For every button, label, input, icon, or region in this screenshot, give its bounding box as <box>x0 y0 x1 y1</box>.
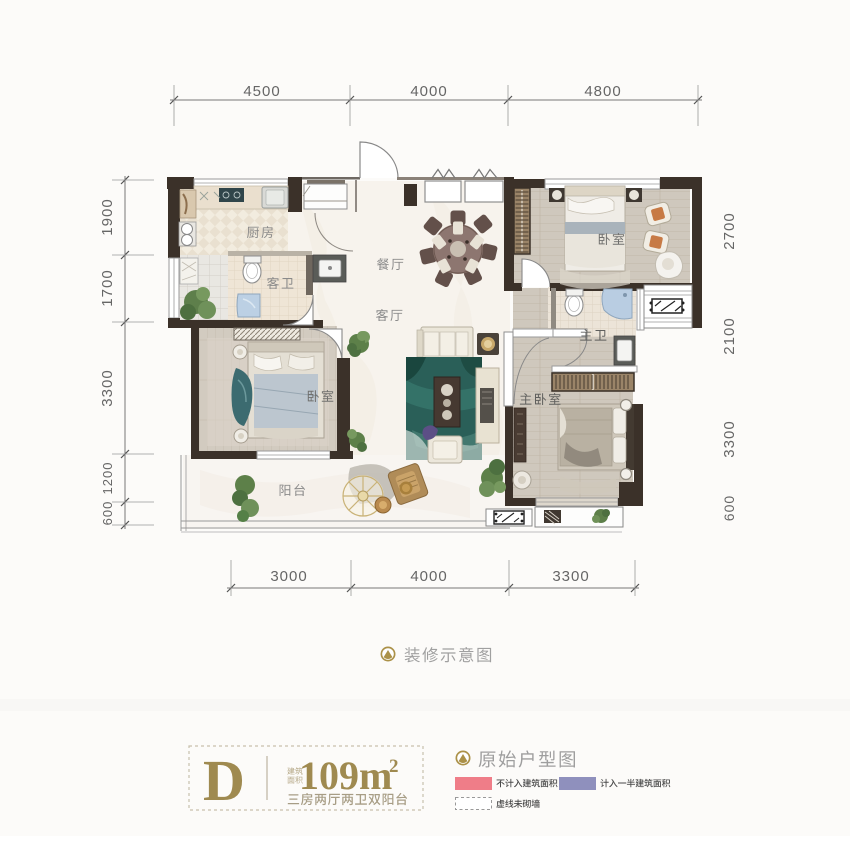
svg-text:600: 600 <box>100 501 115 526</box>
svg-text:109m: 109m <box>299 753 392 798</box>
svg-text:4800: 4800 <box>584 83 621 100</box>
svg-text:2: 2 <box>389 756 399 777</box>
svg-text:2100: 2100 <box>721 317 738 354</box>
svg-text:4000: 4000 <box>410 83 447 100</box>
svg-text:1200: 1200 <box>100 462 115 495</box>
svg-text:600: 600 <box>721 495 737 521</box>
svg-text:3300: 3300 <box>552 568 589 585</box>
svg-text:1900: 1900 <box>99 198 116 235</box>
svg-text:4500: 4500 <box>243 83 280 100</box>
svg-text:3300: 3300 <box>721 420 738 457</box>
svg-text:3000: 3000 <box>270 568 307 585</box>
svg-text:3300: 3300 <box>99 369 116 406</box>
svg-text:D: D <box>203 748 245 813</box>
svg-text:4000: 4000 <box>410 568 447 585</box>
svg-text:1700: 1700 <box>99 269 116 306</box>
svg-text:2700: 2700 <box>721 212 738 249</box>
